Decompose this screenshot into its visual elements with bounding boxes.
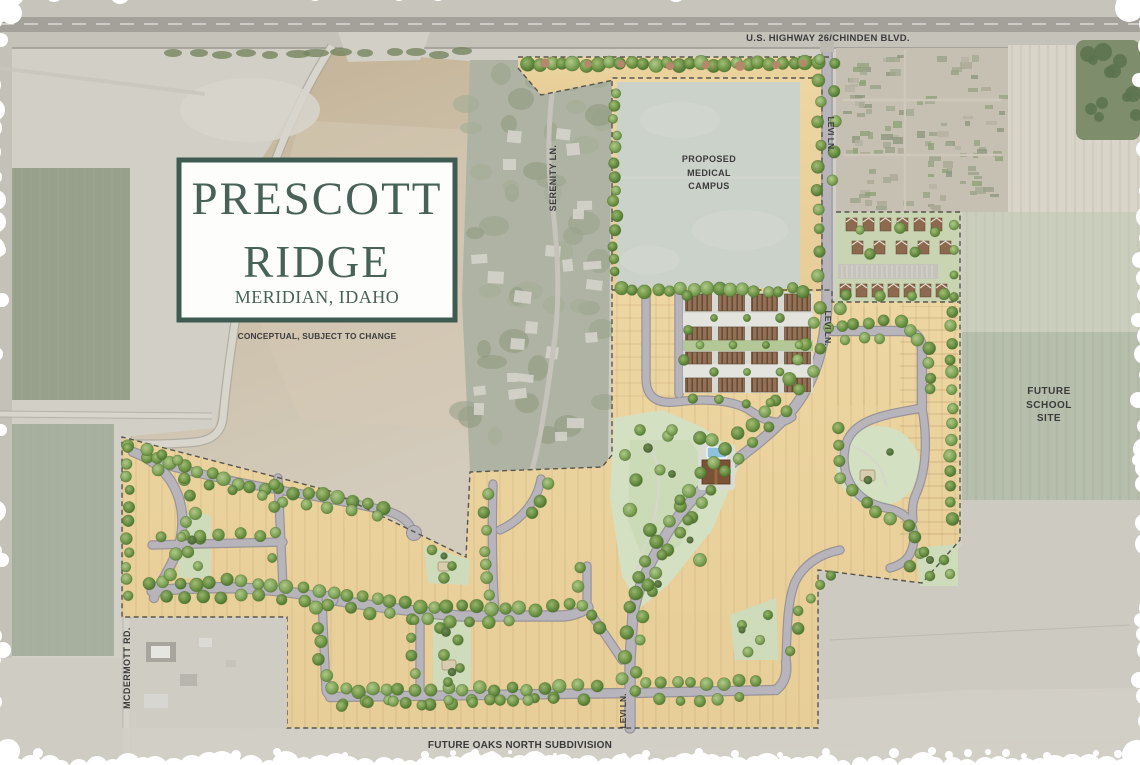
svg-text:MEDICAL: MEDICAL <box>687 168 731 178</box>
svg-text:LEVI LN.: LEVI LN. <box>826 117 836 152</box>
svg-text:MCDERMOTT RD.: MCDERMOTT RD. <box>122 627 132 709</box>
svg-text:FUTURE: FUTURE <box>1027 386 1071 397</box>
svg-text:FUTURE OAKS NORTH SUBDIVISION: FUTURE OAKS NORTH SUBDIVISION <box>428 740 612 751</box>
svg-text:SERENITY LN.: SERENITY LN. <box>548 145 558 212</box>
svg-text:PROPOSED: PROPOSED <box>682 154 736 164</box>
svg-text:RIDGE: RIDGE <box>243 237 390 287</box>
svg-text:LEVI LN.: LEVI LN. <box>618 694 628 729</box>
svg-text:SITE: SITE <box>1037 413 1061 424</box>
svg-text:MERIDIAN, IDAHO: MERIDIAN, IDAHO <box>235 287 399 307</box>
svg-text:CONCEPTUAL, SUBJECT TO CHANGE: CONCEPTUAL, SUBJECT TO CHANGE <box>238 331 397 341</box>
svg-text:U.S. HIGHWAY 26/CHINDEN BLVD.: U.S. HIGHWAY 26/CHINDEN BLVD. <box>746 33 910 44</box>
svg-text:SCHOOL: SCHOOL <box>1026 400 1072 411</box>
svg-text:LEVI LN.: LEVI LN. <box>823 311 833 346</box>
svg-text:PRESCOTT: PRESCOTT <box>191 173 442 225</box>
svg-text:CAMPUS: CAMPUS <box>688 181 729 191</box>
